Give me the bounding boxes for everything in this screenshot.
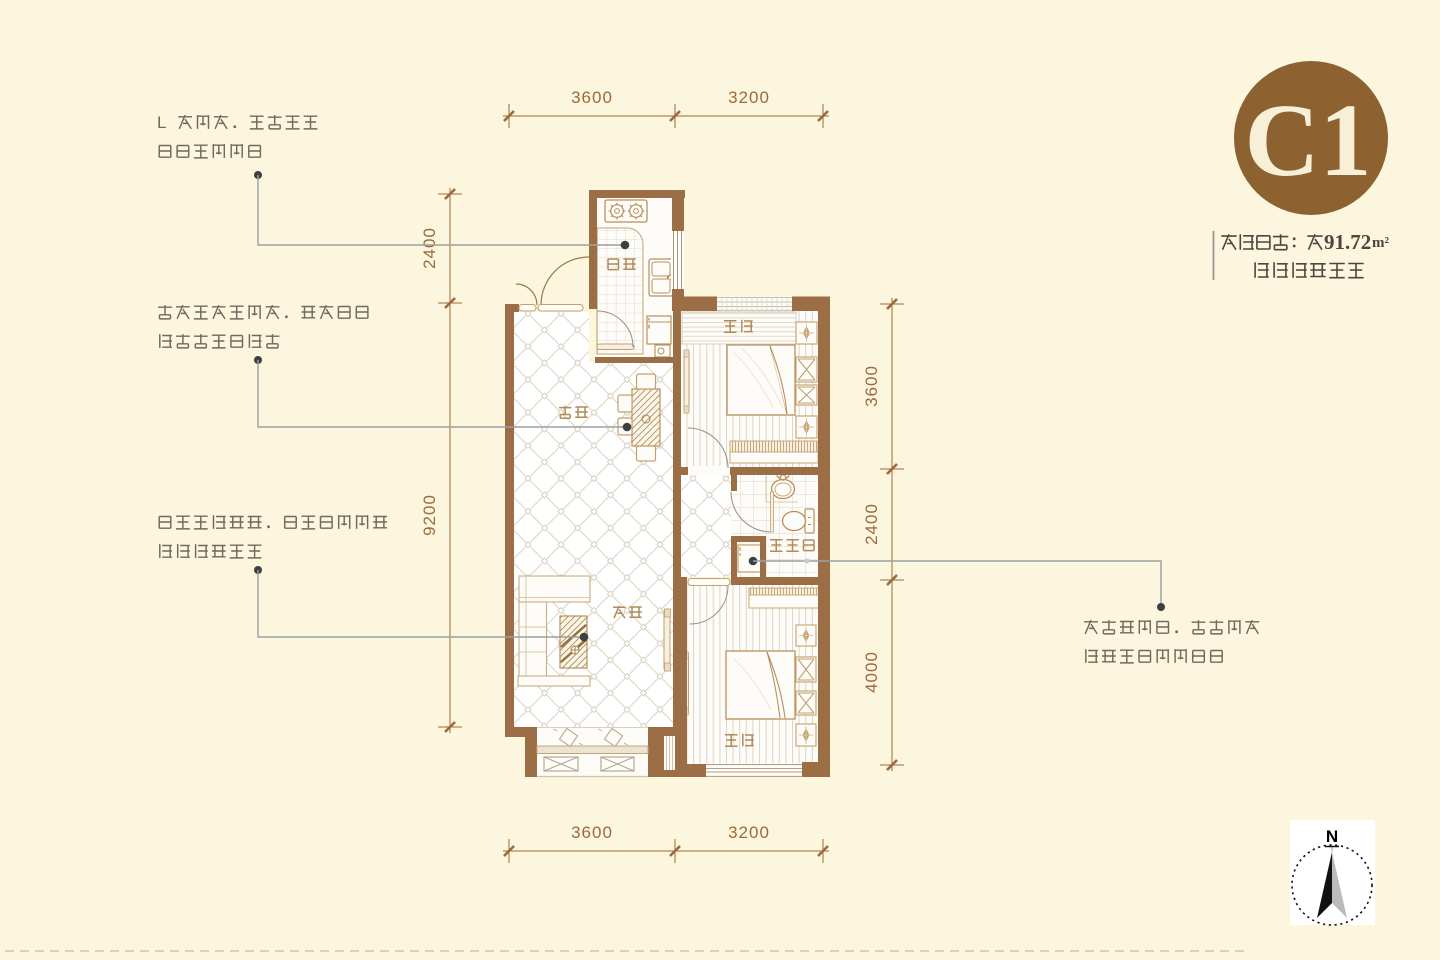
svg-text:91.72: 91.72 (1324, 230, 1371, 254)
svg-text:3200: 3200 (728, 823, 770, 842)
svg-text:C1: C1 (1244, 83, 1371, 198)
svg-text:L: L (157, 113, 166, 132)
svg-text:3600: 3600 (862, 365, 881, 407)
svg-text:3600: 3600 (571, 823, 613, 842)
svg-text:9200: 9200 (420, 494, 439, 536)
svg-text:3200: 3200 (728, 88, 770, 107)
svg-text:3600: 3600 (571, 88, 613, 107)
svg-text:2400: 2400 (420, 227, 439, 269)
svg-text:m²: m² (1372, 235, 1389, 251)
svg-text:N: N (1326, 827, 1338, 846)
svg-text:2400: 2400 (862, 503, 881, 545)
svg-text:4000: 4000 (862, 651, 881, 693)
